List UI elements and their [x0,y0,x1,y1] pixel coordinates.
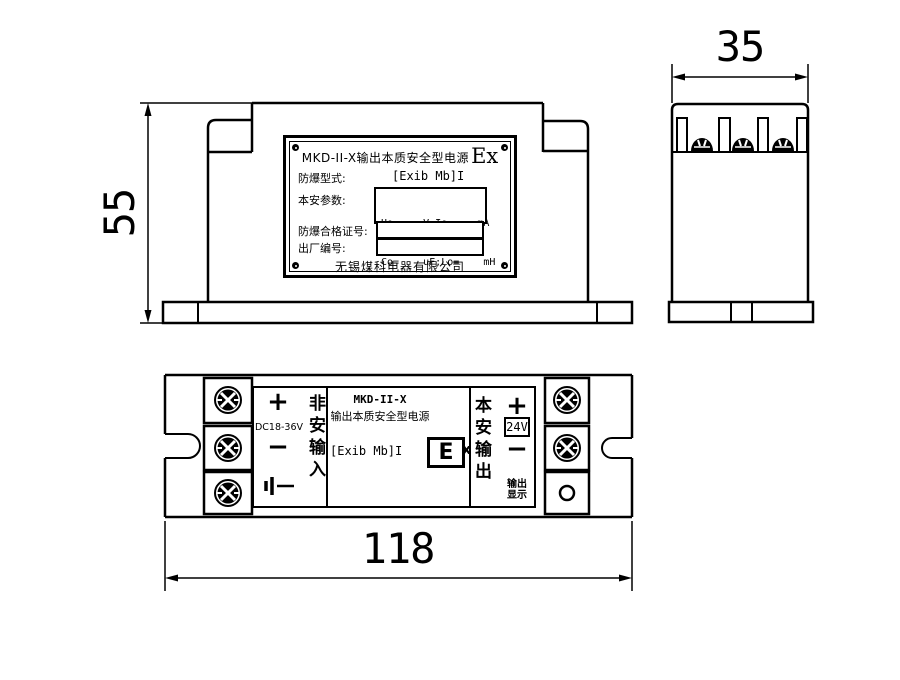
input-minus-sign: − [262,434,294,460]
output-led-label: 输出 显示 [502,479,532,501]
intrinsic-params-box: Uo= V;Io= mA Co= uF;Lo= mH [374,187,487,224]
explosion-proof-type-value: [Exib Mb]I [392,169,464,183]
side-view-outline [669,104,813,322]
nameplate-inner-border: MKD-II-X输出本质安全型电源 Ex 防爆型式: [Exib Mb]I 本安… [289,141,511,272]
height-dimension-label: 55 [99,187,147,239]
depth-dimension-label: 35 [704,26,776,68]
manufacturer-name: 无锡煤科电器有限公司 [290,258,510,275]
cert-number-box [376,221,484,239]
ground-icon [266,477,294,495]
serial-number-box [376,238,484,256]
output-led-icon [560,486,574,500]
length-dimension-label: 118 [356,528,440,570]
explosion-proof-type-label: 防爆型式: [298,170,346,186]
output-minus-sign: − [501,436,533,462]
nameplate-title: MKD-II-X输出本质安全型电源 [302,149,469,166]
technical-drawing-canvas: 55 35 118 MKD-II-X输出本质安全型电源 Ex 防爆型式: [Ex… [0,0,900,680]
din-release-slot-right [602,438,632,458]
input-plus-sign: + [262,389,294,415]
nameplate: MKD-II-X输出本质安全型电源 Ex 防爆型式: [Exib Mb]I 本安… [283,135,517,278]
serial-number-label: 出厂编号: [298,240,346,256]
e-mark-box: E [427,437,465,468]
din-release-slot-left [165,434,200,458]
nameplate-title-row: MKD-II-X输出本质安全型电源 Ex [290,148,510,166]
ex-certification-mark: Ex [471,148,498,166]
plan-model-number: MKD-II-X [328,393,432,406]
output-voltage: 24V [506,420,528,434]
plan-ex-type: [Exib Mb]I [330,444,402,458]
output-led-label-line2: 显示 [502,490,532,501]
drawing-linework [0,0,900,680]
plan-model-subtitle: 输出本质安全型电源 [318,408,442,424]
e-mark: E [438,440,453,465]
output-plus-sign: + [501,393,533,419]
intrinsic-params-label: 本安参数: [298,192,346,208]
intrinsic-output-label: 本安输出 [469,396,494,492]
cert-number-label: 防爆合格证号: [298,223,368,239]
output-led-label-line1: 输出 [502,479,532,490]
screw-head-side-icons [691,138,794,151]
